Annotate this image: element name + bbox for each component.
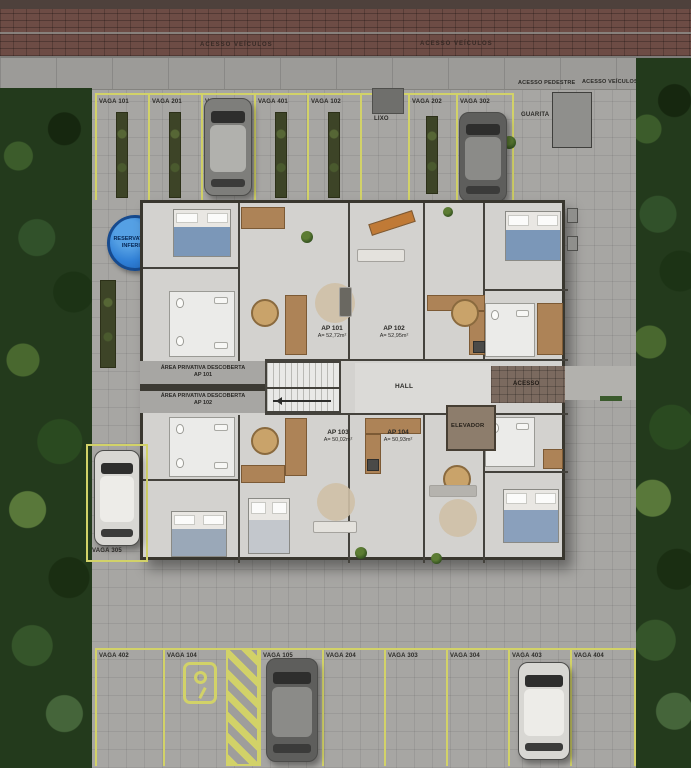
- guardhouse-label: GUARITA: [521, 112, 549, 119]
- pillow: [176, 213, 197, 223]
- ac-unit: [567, 208, 578, 223]
- parking-line: [322, 648, 324, 766]
- spot-label-101: VAGA 101: [99, 99, 129, 106]
- spot-label-305: VAGA 305: [92, 548, 122, 555]
- plant: [431, 553, 442, 564]
- parking-line: [201, 93, 203, 200]
- car-windshield: [466, 124, 500, 135]
- pillow: [537, 215, 558, 226]
- street-center-line: [0, 32, 691, 34]
- parking-line: [360, 93, 362, 200]
- kitchen-counter: [285, 418, 307, 476]
- blanket: [249, 520, 289, 553]
- sink: [516, 310, 529, 317]
- apartment-area: A= 50,02m²: [309, 437, 367, 444]
- parking-line: [456, 93, 458, 200]
- street-marking-right: ACESSO VEÍCULOS: [420, 41, 493, 47]
- apartment-area: A= 52,72m²: [303, 333, 361, 340]
- private-area-ap: AP 102: [194, 400, 212, 406]
- dividing-wall: [140, 384, 265, 391]
- parking-line: [570, 648, 572, 766]
- vegetation-right: [636, 58, 691, 768]
- street-marking-left: ACESSO VEÍCULOS: [200, 42, 273, 48]
- sideboard: [368, 210, 415, 236]
- plant: [355, 547, 367, 559]
- wall: [265, 413, 568, 415]
- spot-label-304: VAGA 304: [450, 653, 480, 660]
- wardrobe: [241, 207, 285, 229]
- car-rear-window: [101, 529, 133, 537]
- apartment-name: AP 102: [365, 325, 423, 333]
- wall: [483, 471, 568, 473]
- parking-line: [95, 648, 636, 650]
- rug: [317, 483, 355, 521]
- sofa: [357, 249, 405, 262]
- wall: [143, 267, 238, 269]
- blanket: [172, 529, 226, 556]
- parking-line: [634, 648, 636, 766]
- car-roof: [524, 689, 564, 736]
- site-plan: ACESSO VEÍCULOS ACESSO VEÍCULOS ACESSO P…: [0, 0, 691, 768]
- wall: [483, 289, 568, 291]
- spot-label-204: VAGA 204: [326, 653, 356, 660]
- pillow: [535, 493, 556, 504]
- pedestrian-access-label: ACESSO PEDESTRE: [518, 80, 575, 86]
- apartment-name: AP 104: [369, 429, 427, 437]
- parking-line: [408, 93, 410, 200]
- car-windshield: [525, 675, 563, 687]
- planter-strip: [328, 112, 340, 198]
- blanket: [174, 227, 230, 256]
- parking-line: [148, 93, 150, 200]
- parking-line: [163, 648, 165, 766]
- toilet: [176, 458, 184, 468]
- dining-table: [251, 427, 279, 455]
- toilet: [176, 336, 184, 346]
- car-roof: [272, 687, 312, 737]
- stove: [473, 341, 485, 353]
- spot-label-202: VAGA 202: [412, 99, 442, 106]
- car-left: [94, 450, 140, 546]
- wardrobe: [543, 449, 563, 469]
- apartment-103-label: AP 103 A= 50,02m²: [309, 429, 367, 443]
- rug: [439, 499, 477, 537]
- parking-line: [254, 93, 256, 200]
- car-top-2: [459, 112, 507, 202]
- pillow: [272, 502, 287, 514]
- bathroom: [169, 417, 235, 477]
- vehicle-access-label: ACESSO VEÍCULOS: [582, 79, 638, 85]
- symbol-tail: [198, 687, 206, 699]
- sofa: [429, 485, 477, 497]
- side-walkway: [565, 366, 636, 400]
- sofa: [313, 521, 357, 533]
- pillow: [251, 502, 266, 514]
- apartment-102-label: AP 102 A= 52,95m²: [365, 325, 423, 339]
- stove: [367, 459, 379, 471]
- wall: [238, 203, 240, 361]
- apartment-area: A= 52,95m²: [365, 333, 423, 340]
- apartment-area: A= 50,93m²: [369, 437, 427, 444]
- bed: [171, 511, 227, 557]
- wardrobe: [537, 303, 563, 355]
- street: ACESSO VEÍCULOS ACESSO VEÍCULOS: [0, 0, 691, 56]
- toilet: [176, 424, 184, 434]
- parking-line: [446, 648, 448, 766]
- car-rear-window: [211, 179, 245, 188]
- blanket: [506, 230, 560, 260]
- parking-line: [95, 93, 514, 95]
- car-rear-window: [273, 744, 311, 753]
- parking-line: [384, 648, 386, 766]
- wardrobe: [241, 465, 285, 483]
- sink: [214, 424, 228, 431]
- wall: [423, 203, 425, 361]
- planter-strip: [426, 116, 438, 194]
- car-top-1: [204, 98, 252, 196]
- parking-line: [307, 93, 309, 200]
- bed: [503, 489, 559, 543]
- spot-label-403: VAGA 403: [512, 653, 542, 660]
- planter-strip: [275, 112, 287, 198]
- hedge-strip: [600, 396, 622, 401]
- dining-table: [451, 299, 479, 327]
- spot-label-302: VAGA 302: [460, 99, 490, 106]
- private-area-101: ÁREA PRIVATIVA DESCOBERTA AP 101: [143, 365, 263, 379]
- sink: [214, 297, 228, 304]
- private-area-ap: AP 101: [194, 372, 212, 378]
- hatched-no-parking-area: [226, 648, 259, 766]
- elevator-label: ELEVADOR: [451, 423, 484, 430]
- toilet: [491, 310, 499, 320]
- guardhouse-structure: [552, 92, 592, 148]
- apartment-name: AP 101: [303, 325, 361, 333]
- parking-line: [259, 648, 261, 766]
- bed: [173, 209, 231, 257]
- car-windshield: [101, 463, 133, 474]
- bathroom: [485, 303, 535, 357]
- stair-divider: [267, 387, 339, 389]
- private-area-text: ÁREA PRIVATIVA DESCOBERTA: [161, 365, 245, 371]
- bed: [248, 498, 290, 554]
- spot-symbol-icon: [183, 662, 217, 704]
- sink: [516, 423, 529, 430]
- wall: [143, 479, 238, 481]
- pillow: [207, 213, 228, 223]
- pillow: [508, 215, 529, 226]
- apartment-104-label: AP 104 A= 50,93m²: [369, 429, 427, 443]
- private-area-text: ÁREA PRIVATIVA DESCOBERTA: [161, 393, 245, 399]
- blanket: [504, 510, 558, 542]
- toilet: [176, 298, 184, 308]
- spot-label-303: VAGA 303: [388, 653, 418, 660]
- bed: [505, 211, 561, 261]
- car-windshield: [273, 672, 311, 684]
- symbol-circle: [194, 671, 207, 684]
- hall-label: HALL: [395, 383, 413, 390]
- wall: [238, 415, 240, 563]
- bathroom: [169, 291, 235, 357]
- apartment-101-label: AP 101 A= 52,72m²: [303, 325, 361, 339]
- parking-line: [508, 648, 510, 766]
- spot-label-102: VAGA 102: [311, 99, 341, 106]
- car-bottom-2: [518, 662, 570, 760]
- spot-label-404: VAGA 404: [574, 653, 604, 660]
- spot-label-402: VAGA 402: [99, 653, 129, 660]
- private-area-102: ÁREA PRIVATIVA DESCOBERTA AP 102: [143, 393, 263, 407]
- vegetation-left: [0, 88, 92, 768]
- parking-line: [95, 93, 97, 200]
- car-roof: [100, 476, 134, 522]
- street-curb: [0, 0, 691, 9]
- planter-strip: [169, 112, 181, 198]
- pillow: [203, 515, 224, 525]
- staircase: [265, 361, 341, 413]
- car-roof: [465, 137, 501, 180]
- plant: [443, 207, 453, 217]
- spot-label-104: VAGA 104: [167, 653, 197, 660]
- car-roof: [210, 125, 246, 172]
- building-floor-plan: AP 101 A= 52,72m² AP 102 A= 52,95m² AP 1…: [140, 200, 565, 560]
- access-label: ACESSO: [513, 381, 540, 388]
- sink: [214, 462, 228, 469]
- pillow: [174, 515, 195, 525]
- plant: [301, 231, 313, 243]
- dining-table: [251, 299, 279, 327]
- pillow: [506, 493, 527, 504]
- stair-direction-arrow: [273, 400, 331, 402]
- trash-enclosure: [372, 88, 404, 114]
- car-rear-window: [466, 186, 500, 194]
- sink: [214, 342, 228, 349]
- car-rear-window: [525, 743, 563, 752]
- garden-strip: [100, 280, 116, 368]
- planter-strip: [116, 112, 128, 198]
- trash-label: LIXO: [374, 116, 389, 123]
- spot-label-201: VAGA 201: [152, 99, 182, 106]
- spot-label-401: VAGA 401: [258, 99, 288, 106]
- apartment-name: AP 103: [309, 429, 367, 437]
- car-windshield: [211, 111, 245, 123]
- ac-unit: [567, 236, 578, 251]
- armchair: [339, 287, 352, 317]
- car-bottom-1: [266, 658, 318, 762]
- parking-line: [95, 648, 97, 766]
